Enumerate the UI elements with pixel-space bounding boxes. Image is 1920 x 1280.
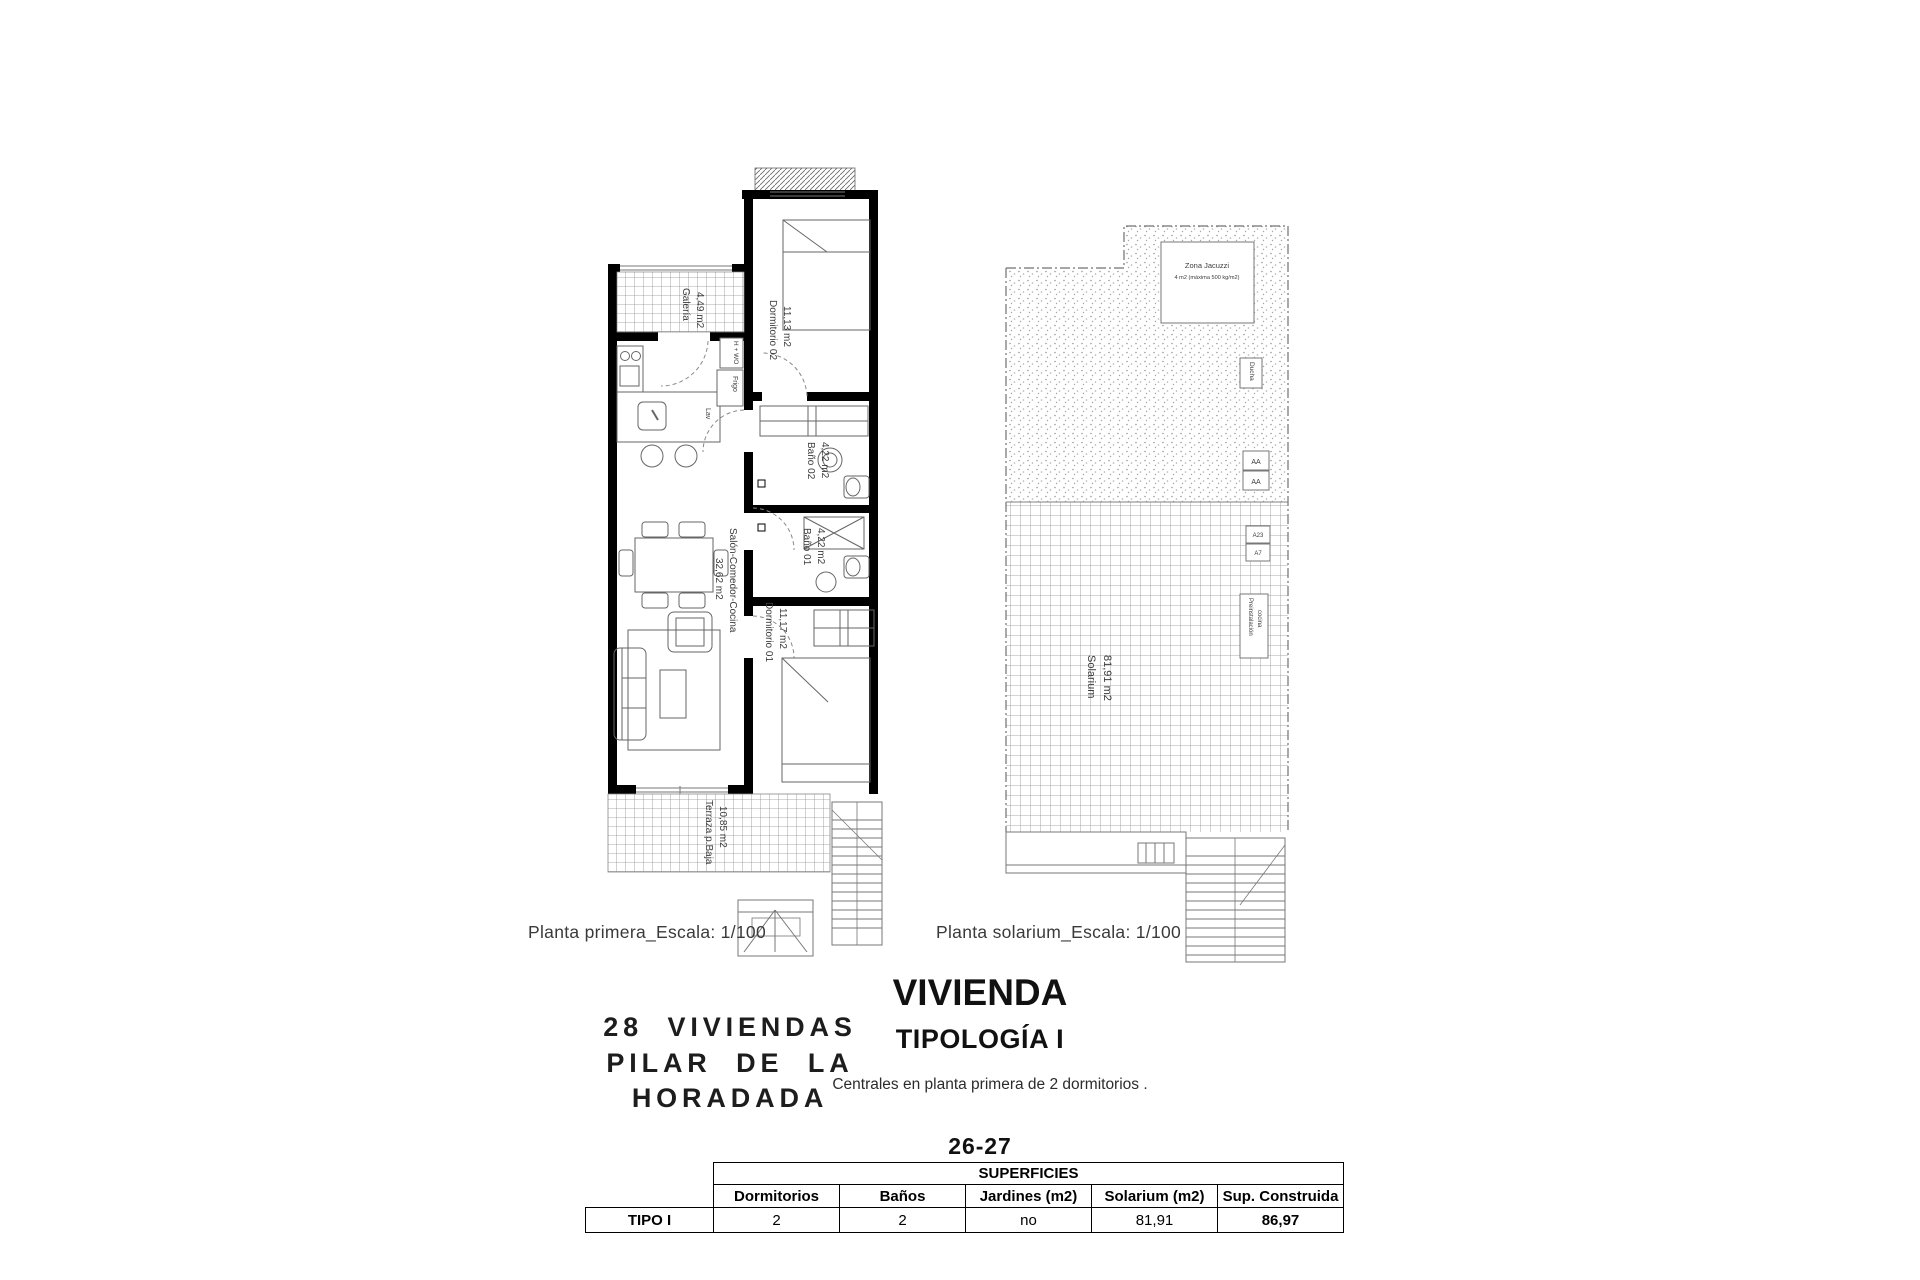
dorm02-area: 11,13 m2 [781, 306, 792, 347]
value-solarium: 81,91 [1092, 1208, 1218, 1233]
living-furniture [614, 522, 728, 750]
bano01-area: 4,22 m2 [815, 528, 826, 565]
unit-numbers: 26-27 [830, 1133, 1130, 1160]
col-sup-construida: Sup. Construida [1218, 1185, 1344, 1208]
kitchen-preinstall-box: Preinstalación cocina [1240, 594, 1268, 658]
solarium-caption: Planta solarium_Escala: 1/100 [936, 922, 1181, 943]
salon-area: 32,62 m2 [713, 558, 724, 600]
table-blank-cell [586, 1163, 714, 1185]
stairs [832, 802, 882, 945]
jacuzzi-label-1: Zona Jacuzzi [1185, 261, 1230, 270]
frigo-label: Frigo [731, 376, 738, 392]
bed-dorm01 [782, 610, 874, 782]
equipment-boxes: A23 A7 [1246, 526, 1270, 561]
ac-units: AA AA [1243, 451, 1269, 490]
dorm02-label: Dormitorio 02 [767, 300, 778, 360]
col-dormitorios: Dormitorios [714, 1185, 840, 1208]
jacuzzi-label-2: 4 m2 (máxima 500 kg/m2) [1175, 275, 1240, 281]
table-title: SUPERFICIES [714, 1163, 1344, 1185]
solarium-plan: Zona Jacuzzi 4 m2 (máxima 500 kg/m2) Duc… [990, 215, 1310, 975]
solarium-stairs [1186, 838, 1285, 962]
table-blank-cell [586, 1185, 714, 1208]
unit1-label: A23 [1253, 533, 1264, 539]
bath01-fixtures [804, 517, 869, 592]
typology-subheading: TIPOLOGÍA I [830, 1024, 1130, 1055]
bed-dorm02 [783, 220, 870, 330]
room-labels: Galería 4,49 m2 Dormitorio 02 11,13 m2 B… [680, 288, 830, 865]
canopy-hatch [755, 168, 855, 192]
solarium-area: 81,91 m2 [1101, 655, 1113, 701]
terraza-label: Terraza p.Baja [703, 800, 714, 865]
bano02-area: 4,22 m2 [819, 442, 830, 479]
unit2-label: A7 [1254, 551, 1262, 557]
row-label-tipo: TIPO I [586, 1208, 714, 1233]
value-banos: 2 [840, 1208, 966, 1233]
salon-label: Salón-Comedor-Cocina [727, 528, 738, 633]
galeria-label: Galería [680, 288, 691, 321]
hwo-label: H + WO [732, 341, 739, 364]
value-sup-construida: 86,97 [1218, 1208, 1344, 1233]
preinstall-label-2: cocina [1256, 610, 1262, 628]
plan-sheet: Galería 4,49 m2 Dormitorio 02 11,13 m2 B… [0, 0, 1920, 1280]
jacuzzi-zone: Zona Jacuzzi 4 m2 (máxima 500 kg/m2) [1161, 242, 1254, 323]
typology-description: Centrales en planta primera de 2 dormito… [830, 1076, 1150, 1094]
aa1-label: AA [1251, 459, 1261, 466]
terraza-area: 10,85 m2 [717, 806, 728, 848]
lav-label: Lav [704, 408, 711, 420]
superficies-table: SUPERFICIES Dormitorios Baños Jardines (… [585, 1162, 1344, 1233]
galeria-area: 4,49 m2 [694, 292, 705, 329]
dorm01-area: 11,17 m2 [777, 608, 788, 649]
first-floor-plan: Galería 4,49 m2 Dormitorio 02 11,13 m2 B… [580, 160, 900, 970]
aa2-label: AA [1251, 479, 1261, 486]
value-dormitorios: 2 [714, 1208, 840, 1233]
col-banos: Baños [840, 1185, 966, 1208]
preinstall-label-1: Preinstalación [1247, 598, 1253, 636]
kitchen-counter [617, 346, 720, 467]
first-floor-caption: Planta primera_Escala: 1/100 [528, 922, 766, 943]
bano01-label: Baño 01 [801, 528, 812, 566]
dorm01-label: Dormitorio 01 [763, 602, 774, 662]
bano02-label: Baño 02 [805, 442, 816, 480]
ducha-label: Ducha [1248, 362, 1255, 381]
col-solarium: Solarium (m2) [1092, 1185, 1218, 1208]
value-jardines: no [966, 1208, 1092, 1233]
col-jardines: Jardines (m2) [966, 1185, 1092, 1208]
solarium-label: Solarium [1085, 655, 1097, 698]
shower-box: Ducha [1240, 358, 1262, 388]
solarium-terrace-edge [1006, 832, 1186, 873]
dwelling-heading: VIVIENDA [830, 972, 1130, 1014]
